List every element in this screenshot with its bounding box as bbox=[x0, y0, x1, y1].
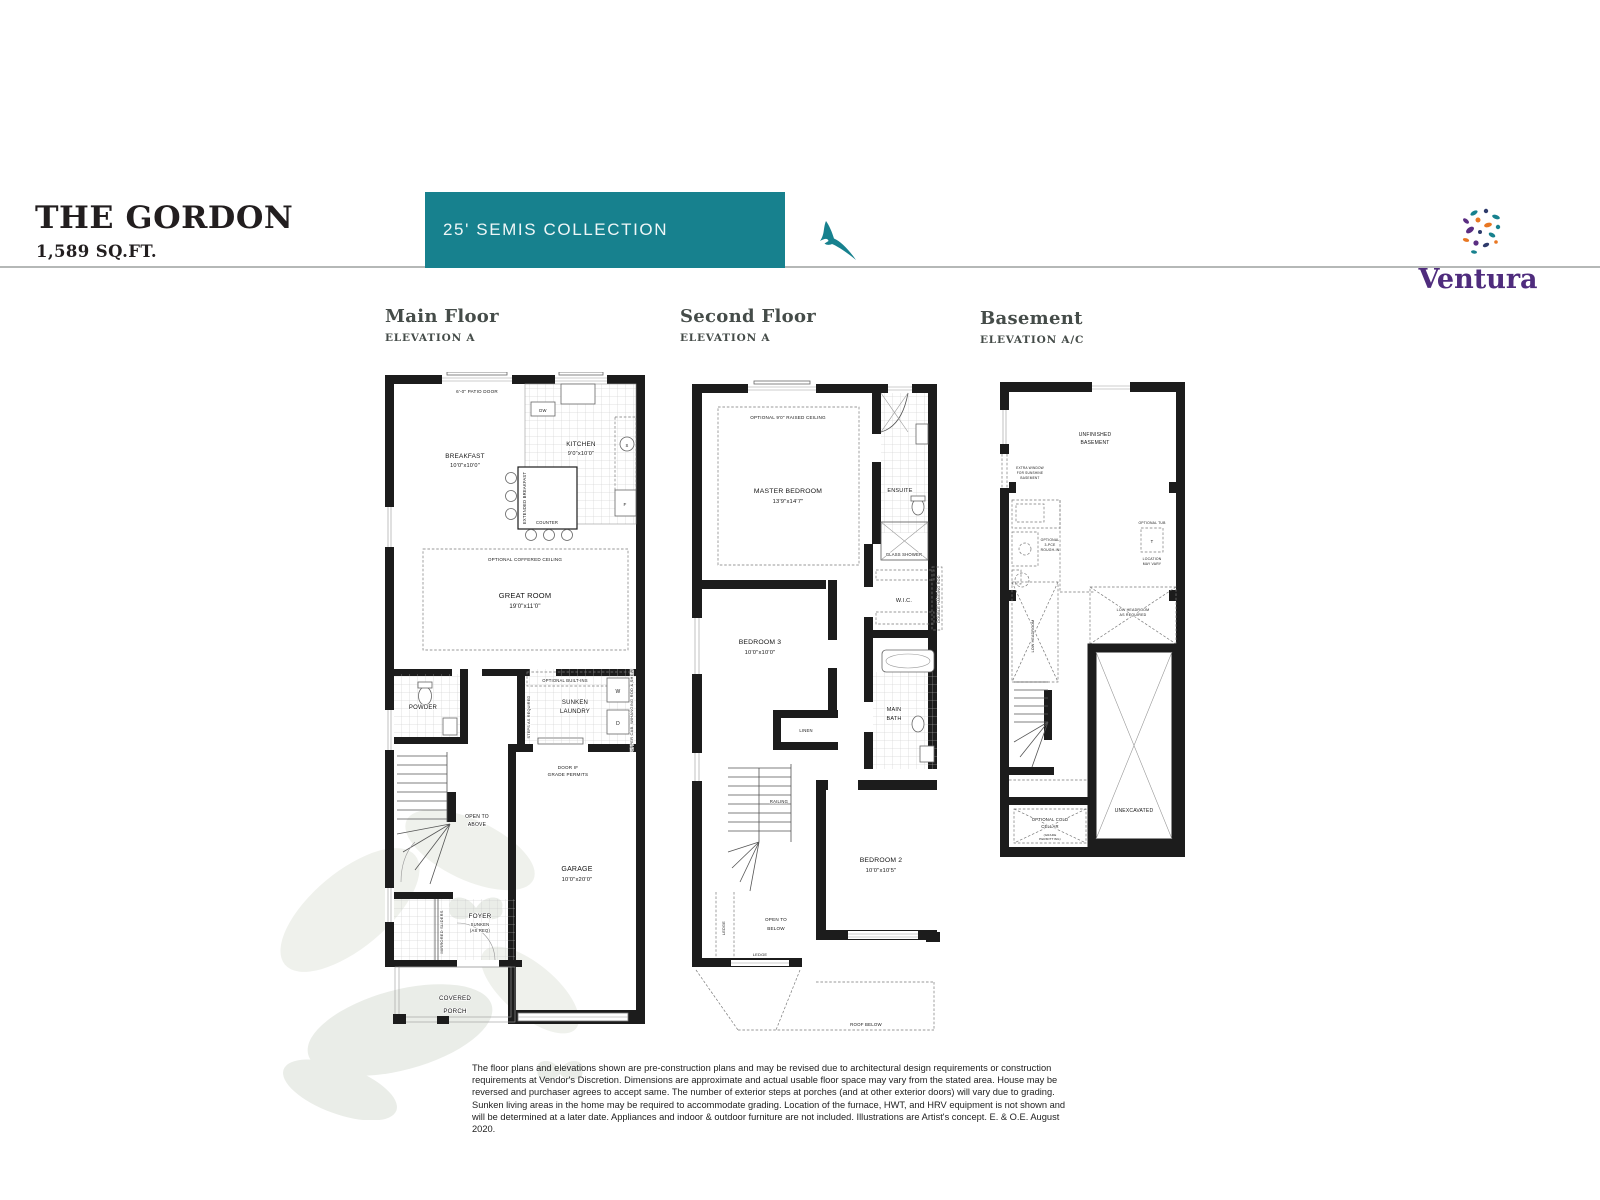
ventura-wordmark: Ventura bbox=[1408, 264, 1548, 295]
label-roof-below: ROOF BELOW bbox=[850, 1022, 882, 1027]
label-bedroom2: BEDROOM 2 bbox=[860, 857, 903, 864]
main-floor-heading: Main Floor ELEVATION A bbox=[385, 306, 499, 344]
label-bath-word: BATH bbox=[886, 716, 901, 722]
stairs-main bbox=[397, 752, 450, 884]
second-floor-heading: Second Floor ELEVATION A bbox=[680, 306, 816, 344]
ventura-logo: Ventura bbox=[1408, 205, 1548, 295]
label-extra3: BASEMENT bbox=[1020, 476, 1039, 480]
label-unfinished: UNFINISHED bbox=[1079, 432, 1112, 438]
label-breakfast-dim: 10'0"x10'0" bbox=[450, 463, 480, 469]
label-garage-dim: 10'0"x20'0" bbox=[562, 877, 593, 883]
collection-banner: 25' SEMIS COLLECTION bbox=[425, 192, 785, 268]
label-sink: S bbox=[626, 443, 629, 448]
label-linen: LINEN bbox=[799, 728, 812, 733]
logo-confetti bbox=[1462, 209, 1500, 254]
label-covered: COVERED bbox=[439, 995, 471, 1002]
main-floor-title: Main Floor bbox=[385, 306, 499, 327]
label-ensuite: ENSUITE bbox=[887, 488, 912, 494]
header-divider bbox=[0, 266, 1600, 268]
label-open-to: OPEN TO bbox=[765, 917, 787, 922]
label-great-room: GREAT ROOM bbox=[499, 591, 552, 600]
label-glass-shower: GLASS SHOWER bbox=[886, 552, 922, 557]
foyer-area bbox=[394, 899, 515, 960]
label-laundry: LAUNDRY bbox=[560, 709, 590, 715]
label-open-to: OPEN TO bbox=[465, 814, 489, 820]
basement-heading: Basement ELEVATION A/C bbox=[980, 308, 1084, 346]
label-rough1: OPTIONAL bbox=[1041, 538, 1060, 542]
basement-elevation: ELEVATION A/C bbox=[980, 334, 1084, 346]
raised-ceiling-outline bbox=[718, 407, 859, 565]
label-ledge-v: LEDGE bbox=[722, 921, 726, 935]
label-wic: W.I.C. bbox=[896, 598, 912, 604]
label-foyer-sunken: SUNKEN bbox=[471, 922, 490, 927]
label-rough3: ROUGH-IN bbox=[1041, 548, 1060, 552]
label-foyer: FOYER bbox=[468, 913, 491, 920]
label-dryer: D bbox=[616, 721, 620, 727]
label-patio-door: 6'-0" PATIO DOOR bbox=[456, 389, 498, 394]
label-basement-word: BASEMENT bbox=[1080, 440, 1109, 446]
label-main-word: MAIN bbox=[887, 707, 902, 713]
label-loc2: MAY VARY bbox=[1143, 562, 1162, 566]
label-kitchen-dim: 9'0"x10'0" bbox=[568, 451, 594, 457]
main-floor-elevation: ELEVATION A bbox=[385, 332, 499, 344]
label-garage: GARAGE bbox=[561, 866, 592, 873]
label-counter: COUNTER bbox=[536, 520, 558, 525]
label-double-rod: DOUBLE HANGING ROD bbox=[937, 575, 941, 623]
label-lowhead2: AS REQUIRED bbox=[1120, 613, 1147, 617]
label-powder: POWDER bbox=[409, 705, 438, 711]
label-master-dim: 13'9"x14'7" bbox=[773, 499, 804, 505]
label-great-room-dim: 19'0"x11'0" bbox=[509, 604, 540, 610]
disclaimer-text: The floor plans and elevations shown are… bbox=[472, 1062, 1078, 1134]
label-tub: OPTIONAL TUB bbox=[1138, 521, 1166, 525]
basement-plan: UNFINISHED BASEMENT EXTRA WINDOW FOR SUN… bbox=[1000, 382, 1185, 857]
main-floor-plan: 6'-0" PATIO DOOR BREAKFAST 10'0"x10'0" K… bbox=[385, 372, 645, 1034]
square-footage: 1,589 SQ.FT. bbox=[36, 242, 157, 261]
second-floor-plan: OPTIONAL 9'0" RAISED CEILING MASTER BEDR… bbox=[676, 372, 948, 1037]
label-steps-required: STEPS AS REQUIRED bbox=[527, 696, 531, 739]
label-above: ABOVE bbox=[468, 822, 487, 828]
label-extra1: EXTRA WINDOW bbox=[1016, 466, 1044, 470]
basement-title: Basement bbox=[980, 308, 1084, 329]
label-lowhead1: LOW HEADROOM bbox=[1117, 608, 1150, 612]
label-door-if: DOOR IF bbox=[558, 765, 579, 770]
second-floor-elevation: ELEVATION A bbox=[680, 332, 816, 344]
label-unexcavated: UNEXCAVATED bbox=[1115, 808, 1154, 814]
label-sunken: SUNKEN bbox=[562, 700, 588, 706]
label-rough2: 3-PCE bbox=[1045, 543, 1057, 547]
label-cold1: OPTIONAL COLD bbox=[1032, 817, 1068, 822]
label-extended-breakfast: EXTENDED BREAKFAST bbox=[522, 472, 527, 524]
label-dw: DW bbox=[539, 408, 546, 413]
label-railing: RAILING bbox=[770, 799, 788, 804]
label-raised-ceiling: OPTIONAL 9'0" RAISED CEILING bbox=[750, 415, 826, 420]
label-upper-cab: UPPER CAB. W/HANGING ROD & SHELF bbox=[629, 668, 634, 751]
label-extra2: FOR SUNSHINE bbox=[1017, 471, 1044, 475]
roof-below-outline bbox=[696, 970, 934, 1030]
label-fridge: F bbox=[623, 502, 626, 507]
label-ledge-h: LEDGE bbox=[753, 952, 768, 957]
bird-icon bbox=[812, 220, 860, 264]
label-kitchen: KITCHEN bbox=[566, 441, 596, 448]
label-foyer-asreq: (AS REQ) bbox=[470, 928, 491, 933]
label-lowhead-v: LOW HEADROOM bbox=[1031, 620, 1035, 653]
label-washer: W bbox=[616, 689, 621, 695]
label-cold2: CELLAR bbox=[1041, 824, 1059, 829]
label-mirrored-sliders: MIRRORED SLIDERS bbox=[439, 910, 444, 953]
main-bath-area bbox=[873, 650, 937, 769]
ensuite-area bbox=[881, 393, 928, 560]
second-floor-title: Second Floor bbox=[680, 306, 816, 327]
ventura-logo-mark bbox=[1408, 205, 1548, 257]
label-coffered: OPTIONAL COFFERED CEILING bbox=[488, 557, 562, 562]
label-master: MASTER BEDROOM bbox=[754, 488, 822, 495]
label-loc1: LOCATION bbox=[1143, 557, 1162, 561]
label-grade-permits: GRADE PERMITS bbox=[548, 772, 589, 777]
page-title: THE GORDON bbox=[35, 200, 293, 236]
collection-banner-label: 25' SEMIS COLLECTION bbox=[425, 220, 668, 240]
label-bedroom2-dim: 10'0"x10'5" bbox=[866, 868, 897, 874]
label-grade2: PERMITTING) bbox=[1039, 837, 1061, 841]
label-porch: PORCH bbox=[443, 1008, 466, 1015]
label-bedroom3: BEDROOM 3 bbox=[739, 639, 782, 646]
label-breakfast: BREAKFAST bbox=[445, 453, 484, 460]
label-optional-builtins: OPTIONAL BUILT-INS bbox=[542, 678, 587, 683]
label-tub-t: T bbox=[1151, 539, 1154, 544]
label-below: BELOW bbox=[767, 926, 785, 931]
label-bedroom3-dim: 10'0"x10'0" bbox=[745, 650, 776, 656]
